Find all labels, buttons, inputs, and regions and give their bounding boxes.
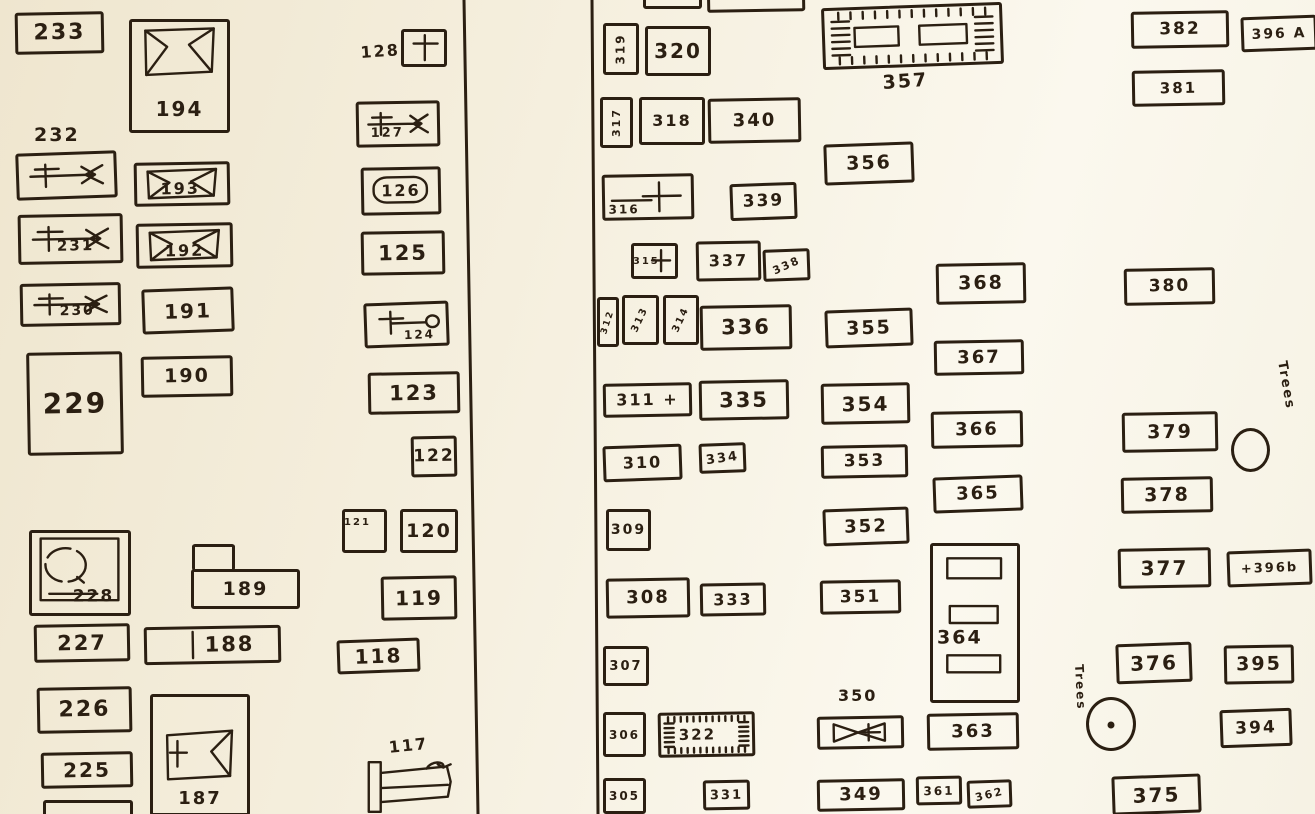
plot-label-305: 305 [609, 790, 640, 802]
plot-363: 363 [927, 712, 1020, 751]
hatch2-icon [824, 5, 1001, 67]
plot-label-194: 194 [156, 99, 204, 119]
plot-232 [15, 150, 118, 200]
plot-356: 356 [823, 141, 914, 185]
plot-127: 127 [356, 100, 441, 147]
plot-label-124: 124 [404, 328, 435, 341]
crossbar-icon [18, 153, 114, 197]
plot-194: 194 [129, 19, 230, 133]
plot-122: 122 [411, 436, 458, 478]
plot-map-canvas: 2331941932311922301912291902281892271882… [0, 0, 1315, 814]
plot-label-333: 333 [713, 591, 753, 608]
plot-188: 188 [144, 625, 282, 665]
plot-label-120: 120 [406, 522, 452, 541]
plot-label-365: 365 [956, 484, 1000, 504]
plot-337: 337 [696, 240, 762, 281]
plot-315: 315 [631, 243, 678, 279]
plot-label-380: 380 [1149, 278, 1191, 296]
plot-label-381: 381 [1160, 80, 1198, 96]
plot-label-362: 362 [974, 785, 1005, 803]
plot-label-366: 366 [955, 420, 999, 439]
plot-338: 338 [762, 248, 810, 282]
threerects-icon [933, 546, 1017, 700]
plot-378: 378 [1121, 476, 1214, 514]
plot-label-378: 378 [1144, 485, 1190, 505]
plot-119: 119 [381, 575, 458, 620]
plot-label-307: 307 [609, 660, 642, 673]
plot-312: 312 [597, 297, 619, 347]
plot-label-189: 189 [223, 580, 269, 599]
plot-label-126: 126 [381, 183, 421, 200]
plot-label-315: 315 [633, 257, 660, 267]
plot-123: 123 [368, 371, 461, 415]
plot-121: 121 [342, 509, 387, 553]
bed-icon [366, 760, 458, 814]
plot-394: 394 [1219, 708, 1292, 748]
117-caption: 117 [388, 736, 429, 756]
plot-128 [401, 29, 447, 67]
plot-192: 192 [136, 222, 234, 269]
plot-314: 314 [663, 295, 699, 345]
plot-label-356: 356 [846, 153, 892, 174]
plot-333: 333 [700, 582, 767, 616]
plot-label-363: 363 [951, 722, 995, 741]
plot-label-336: 336 [721, 317, 771, 339]
plot-311: 311 + [603, 382, 693, 418]
plot-305: 305 [603, 778, 646, 814]
divider-line-1 [464, 0, 478, 814]
plot-120: 120 [400, 509, 458, 553]
plot-366: 366 [931, 410, 1024, 449]
plot-top-partial-a [643, 0, 702, 9]
plot-label-394: 394 [1235, 719, 1277, 737]
plot-label-229: 229 [43, 389, 108, 418]
plot-label-225: 225 [63, 760, 111, 781]
plot-label-331: 331 [710, 788, 743, 802]
plot-375: 375 [1111, 773, 1201, 814]
plot-364: 364 [930, 543, 1020, 703]
plot-label-368: 368 [958, 274, 1004, 294]
tcross-icon [404, 32, 444, 64]
plot-320: 320 [645, 26, 711, 76]
plot-label-226: 226 [58, 699, 110, 722]
plot-331: 331 [703, 780, 751, 811]
plot-label-231: 231 [57, 238, 95, 254]
plot-label-310: 310 [623, 454, 663, 471]
plot-335: 335 [699, 379, 790, 421]
plot-label-376: 376 [1130, 652, 1178, 674]
plot-label-317: 317 [611, 108, 622, 137]
plot-label-364: 364 [937, 629, 983, 648]
plot-label-125: 125 [378, 242, 428, 264]
plot-187: 187 [150, 694, 250, 814]
plot-label-338: 338 [771, 254, 802, 276]
plot-label-335: 335 [719, 389, 769, 411]
plot-189-annex [192, 544, 235, 571]
plot-label-361: 361 [923, 784, 954, 797]
plot-label-316: 316 [608, 203, 639, 216]
plot-233: 233 [15, 11, 105, 55]
232-caption: 232 [34, 126, 80, 145]
plot-117 [366, 760, 458, 814]
plot-label-306: 306 [609, 729, 640, 741]
plot-label-352: 352 [844, 517, 888, 537]
plot-224-partial [43, 800, 133, 814]
plot-label-193: 193 [160, 180, 200, 197]
plot-label-354: 354 [841, 393, 889, 414]
plot-label-340: 340 [733, 111, 777, 130]
plot-351: 351 [820, 579, 902, 614]
plot-379: 379 [1122, 411, 1219, 453]
plot-353: 353 [821, 444, 909, 479]
plot-365: 365 [932, 474, 1023, 513]
plot-label-233: 233 [33, 22, 85, 45]
plot-310: 310 [602, 444, 682, 483]
plot-label-121: 121 [344, 518, 371, 528]
plot-380: 380 [1124, 267, 1216, 306]
plot-191: 191 [141, 286, 235, 334]
plot-label-379: 379 [1147, 422, 1193, 442]
plot-322: 322 [658, 711, 756, 758]
plot-361: 361 [916, 776, 962, 806]
tree-1-circle [1231, 428, 1270, 472]
plot-label-187: 187 [178, 790, 222, 808]
plot-label-311: 311 + [616, 391, 679, 408]
plot-317: 317 [600, 97, 633, 148]
plot-193: 193 [134, 161, 231, 207]
tree-2-trunk-dot [1108, 721, 1115, 728]
plot-313: 313 [622, 295, 659, 345]
plot-label-318: 318 [652, 113, 691, 129]
plot-189: 189 [191, 569, 300, 609]
plot-124: 124 [363, 301, 450, 349]
plot-229: 229 [26, 351, 124, 456]
plot-318: 318 [639, 97, 705, 145]
plot-125: 125 [361, 230, 446, 275]
plot-label-118: 118 [354, 645, 402, 667]
plot-label-396b: +396b [1241, 561, 1299, 576]
bowtie-icon [820, 718, 901, 746]
plot-226: 226 [37, 686, 133, 734]
plot-362: 362 [967, 779, 1013, 809]
plot-label-122: 122 [413, 448, 455, 466]
plot-306: 306 [603, 712, 646, 757]
plot-228: 228 [29, 530, 131, 616]
plot-label-227: 227 [57, 632, 107, 654]
plot-label-320: 320 [654, 41, 702, 61]
plot-label-127: 127 [371, 127, 404, 141]
plot-350 [817, 715, 905, 750]
plot-label-355: 355 [846, 318, 892, 339]
plot-340: 340 [708, 97, 802, 144]
plot-307: 307 [603, 646, 649, 686]
plot-label-353: 353 [844, 453, 886, 471]
plot-126: 126 [361, 166, 442, 215]
plot-label-188: 188 [204, 634, 254, 656]
128-caption: 128 [360, 42, 400, 61]
plot-label-396A: 396 A [1251, 26, 1306, 42]
plot-label-351: 351 [840, 588, 882, 606]
plot-230: 230 [20, 282, 122, 327]
plot-381: 381 [1132, 69, 1226, 107]
plot-label-230: 230 [60, 304, 95, 319]
plot-368: 368 [936, 262, 1027, 305]
plot-309: 309 [606, 509, 651, 551]
plot-label-377: 377 [1140, 558, 1188, 579]
plot-label-319: 319 [615, 33, 627, 64]
plot-label-382: 382 [1159, 21, 1201, 39]
plot-label-228: 228 [73, 589, 115, 606]
plot-label-334: 334 [705, 449, 740, 466]
plot-367: 367 [934, 339, 1025, 376]
plot-227: 227 [34, 623, 131, 663]
plot-334: 334 [698, 442, 746, 474]
plot-label-190: 190 [164, 367, 210, 387]
plot-label-339: 339 [742, 192, 784, 210]
plot-355: 355 [824, 307, 913, 348]
plot-label-314: 314 [671, 306, 691, 335]
plot-top-partial-b [707, 0, 806, 13]
plot-339: 339 [729, 182, 797, 221]
plot-319: 319 [603, 23, 639, 75]
plot-118: 118 [336, 638, 420, 675]
plot-316: 316 [602, 173, 695, 221]
plot-382: 382 [1131, 10, 1230, 49]
plot-376: 376 [1115, 642, 1192, 685]
plot-label-309: 309 [611, 523, 646, 537]
plot-label-375: 375 [1132, 784, 1180, 806]
divider-line-2 [592, 0, 598, 814]
plot-label-337: 337 [709, 253, 749, 270]
plot-label-395: 395 [1236, 655, 1282, 675]
plot-label-119: 119 [395, 588, 443, 609]
plot-label-367: 367 [957, 348, 1001, 367]
plot-336: 336 [700, 304, 793, 351]
plot-190: 190 [141, 355, 234, 398]
plot-396A: 396 A [1240, 15, 1315, 53]
plot-377: 377 [1118, 547, 1212, 589]
plot-label-191: 191 [164, 300, 212, 322]
plot-231: 231 [18, 213, 124, 265]
plot-label-313: 313 [630, 306, 650, 335]
plot-225: 225 [41, 751, 134, 789]
plot-label-308: 308 [626, 589, 670, 608]
plot-349: 349 [817, 778, 906, 812]
plot-357 [821, 2, 1004, 70]
plot-label-123: 123 [389, 382, 439, 404]
357-caption: 357 [882, 71, 929, 93]
plot-label-349: 349 [839, 786, 883, 805]
plot-308: 308 [606, 577, 691, 618]
350-caption: 350 [838, 688, 877, 704]
tree-2-circle [1086, 697, 1136, 751]
plot-354: 354 [821, 382, 911, 425]
plot-396b: +396b [1226, 549, 1312, 588]
plot-352: 352 [822, 507, 909, 547]
plot-395: 395 [1224, 644, 1295, 684]
trees-2: Trees [1073, 664, 1087, 711]
plot-label-322: 322 [679, 728, 717, 744]
plot-label-312: 312 [600, 309, 616, 335]
plot-label-192: 192 [165, 243, 205, 260]
